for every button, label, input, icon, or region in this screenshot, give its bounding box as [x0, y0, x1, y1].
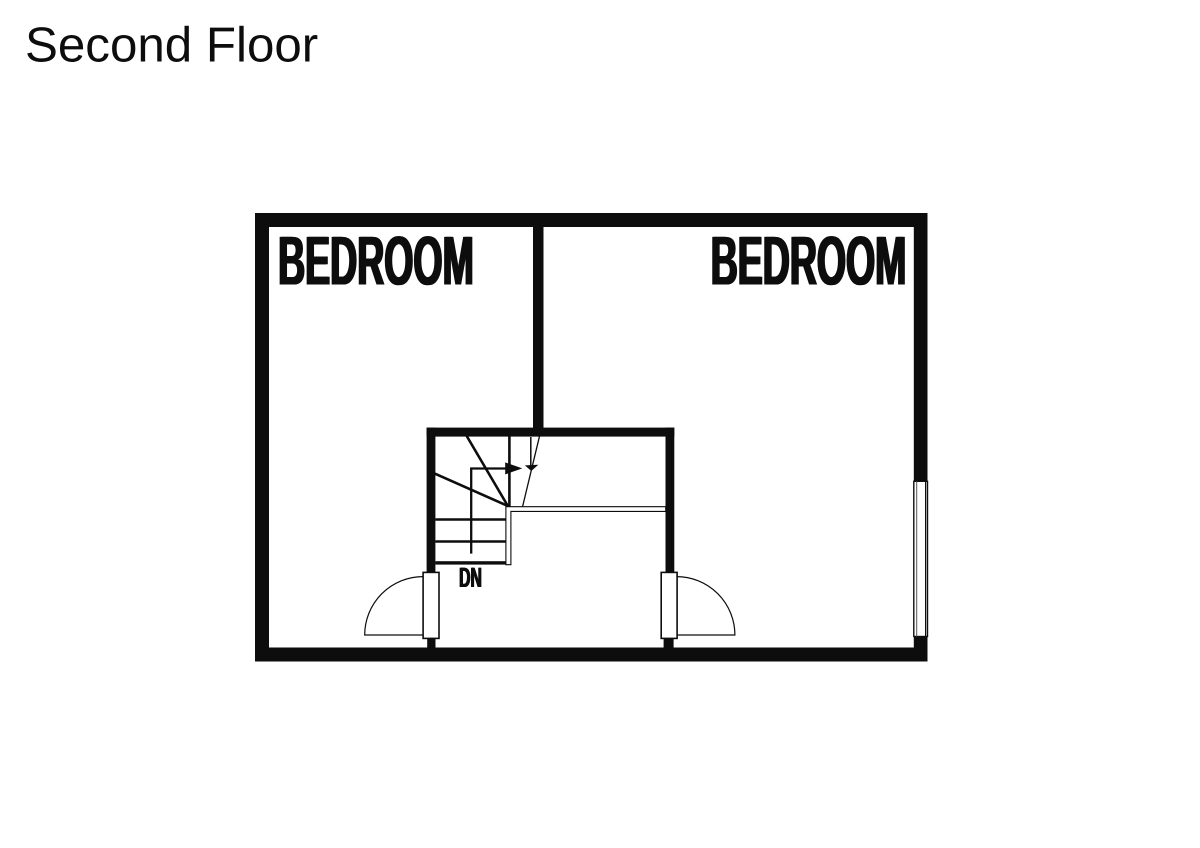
svg-text:Second Floor: Second Floor: [25, 18, 318, 73]
svg-text:BEDROOM: BEDROOM: [279, 222, 475, 300]
svg-text:BEDROOM: BEDROOM: [712, 222, 908, 300]
